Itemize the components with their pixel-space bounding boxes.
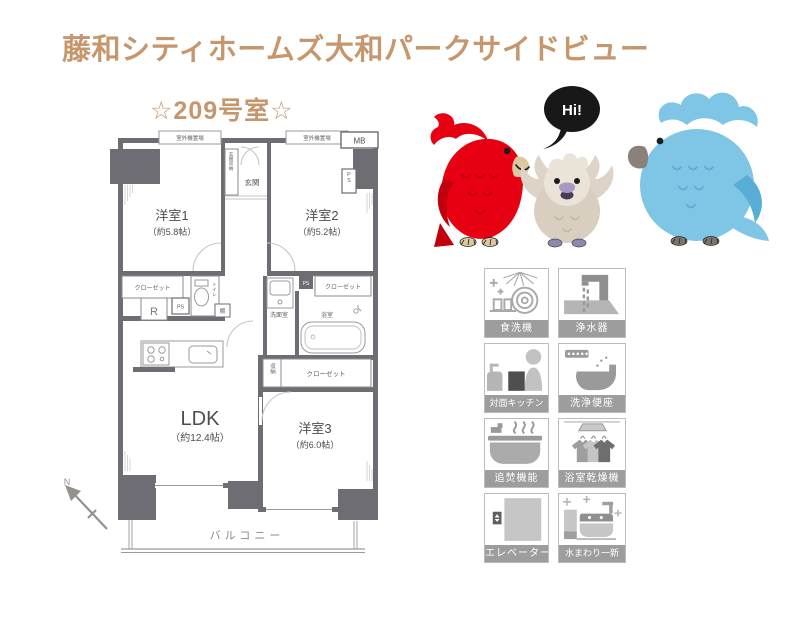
closet-left: クローゼット	[122, 276, 183, 298]
ps-left: PS	[172, 298, 189, 314]
amenity-dishwasher: 食洗機	[484, 268, 549, 338]
washroom: 洗面室	[267, 278, 293, 319]
svg-text:クローゼット: クローゼット	[307, 369, 346, 378]
bathroom-dryer-icon	[559, 419, 625, 470]
mb-label: MB	[354, 137, 366, 146]
room1-size: （約5.8帖）	[148, 226, 197, 237]
kitchen-counter	[133, 341, 223, 372]
speech-bubble: Hi!	[543, 86, 600, 149]
blue-parrot	[628, 93, 769, 246]
amenity-label: 洗浄便座	[559, 395, 625, 412]
toilet-label: トイレ	[211, 282, 216, 297]
amenity-bathroom-dryer: 浴室乾燥機	[558, 418, 626, 488]
ps-top-label: PS	[346, 172, 352, 184]
ldk-name: LDK	[181, 408, 221, 430]
water-purifier-icon	[559, 269, 625, 320]
amenity-label: 食洗機	[485, 320, 548, 337]
amenity-label: 追焚機能	[485, 470, 548, 487]
floorplan-drawing: 室外機置場 室外機置場 MB PS 玄関収納 玄関 洋室1 （約5.8帖） 洋室…	[55, 125, 395, 585]
balcony: バルコニー	[121, 520, 365, 553]
outdoor-unit-left-label: 室外機置場	[176, 134, 204, 142]
closet-right: クローゼット	[315, 276, 371, 296]
genkan-storage-label: 玄関収納	[228, 151, 234, 172]
flyer-page: 藤和シティホームズ大和パークサイドビュー ☆209号室☆	[0, 0, 785, 618]
room2-size: （約5.2帖）	[298, 226, 347, 237]
outdoor-unit-right-label: 室外機置場	[303, 134, 331, 142]
counter-kitchen-icon	[485, 344, 548, 395]
bathroom: 浴室	[301, 305, 365, 353]
amenity-label: エレベーター	[485, 545, 548, 562]
svg-text:N: N	[64, 477, 71, 487]
amenity-grid: 食洗機 浄水器	[484, 268, 626, 563]
svg-text:PS: PS	[177, 305, 185, 311]
amenity-washlet: 洗浄便座	[558, 343, 626, 413]
svg-text:棚: 棚	[220, 307, 226, 315]
svg-text:クローゼット: クローゼット	[325, 283, 361, 291]
reheating-icon	[485, 419, 548, 470]
washroom-label: 洗面室	[270, 311, 288, 319]
elevator-icon	[485, 494, 548, 545]
refrigerator-space: R	[141, 298, 167, 320]
room3-size: （約6.0帖）	[291, 439, 340, 450]
amenity-counter-kitchen: 対面キッチン	[484, 343, 549, 413]
amenity-label: 浄水器	[559, 320, 625, 337]
washlet-icon	[559, 344, 625, 395]
building-title: 藤和シティホームズ大和パークサイドビュー	[62, 26, 649, 68]
svg-text:収納: 収納	[269, 363, 276, 376]
room2-name: 洋室2	[305, 208, 338, 223]
compass-north: N	[64, 477, 107, 529]
entrance: 玄関収納 玄関	[225, 147, 267, 199]
amenity-label: 水まわり一新	[559, 545, 625, 562]
genkan-label: 玄関	[245, 177, 260, 187]
bath-label: 浴室	[321, 311, 333, 319]
parrot-mascots: Hi!	[425, 83, 770, 255]
amenity-water-renewal: 水まわり一新	[558, 493, 626, 563]
dishwasher-icon	[485, 269, 548, 320]
amenity-label: 浴室乾燥機	[559, 470, 625, 487]
amenity-water-purifier: 浄水器	[558, 268, 626, 338]
water-renewal-icon	[559, 494, 625, 545]
svg-text:クローゼット: クローゼット	[134, 284, 170, 292]
svg-text:PS: PS	[303, 281, 310, 287]
closet-bottom: クローゼット	[281, 359, 371, 387]
ldk-size: （約12.4帖）	[170, 431, 229, 444]
shelf-box: 棚	[215, 304, 230, 317]
ps-mid: PS	[299, 276, 313, 289]
room-number: ☆209号室☆	[150, 91, 294, 127]
amenity-label: 対面キッチン	[485, 395, 548, 412]
storage-box: 収納	[263, 359, 281, 387]
door-arcs	[193, 243, 295, 421]
red-parrot	[431, 113, 530, 247]
amenity-elevator: エレベーター	[484, 493, 549, 563]
beige-parrot	[521, 153, 614, 247]
speech-bubble-text: Hi!	[562, 102, 582, 119]
svg-text:R: R	[150, 306, 158, 318]
balcony-label: バルコニー	[210, 529, 285, 542]
room3-name: 洋室3	[298, 421, 331, 436]
room1-name: 洋室1	[155, 208, 188, 223]
amenity-reheating: 追焚機能	[484, 418, 549, 488]
